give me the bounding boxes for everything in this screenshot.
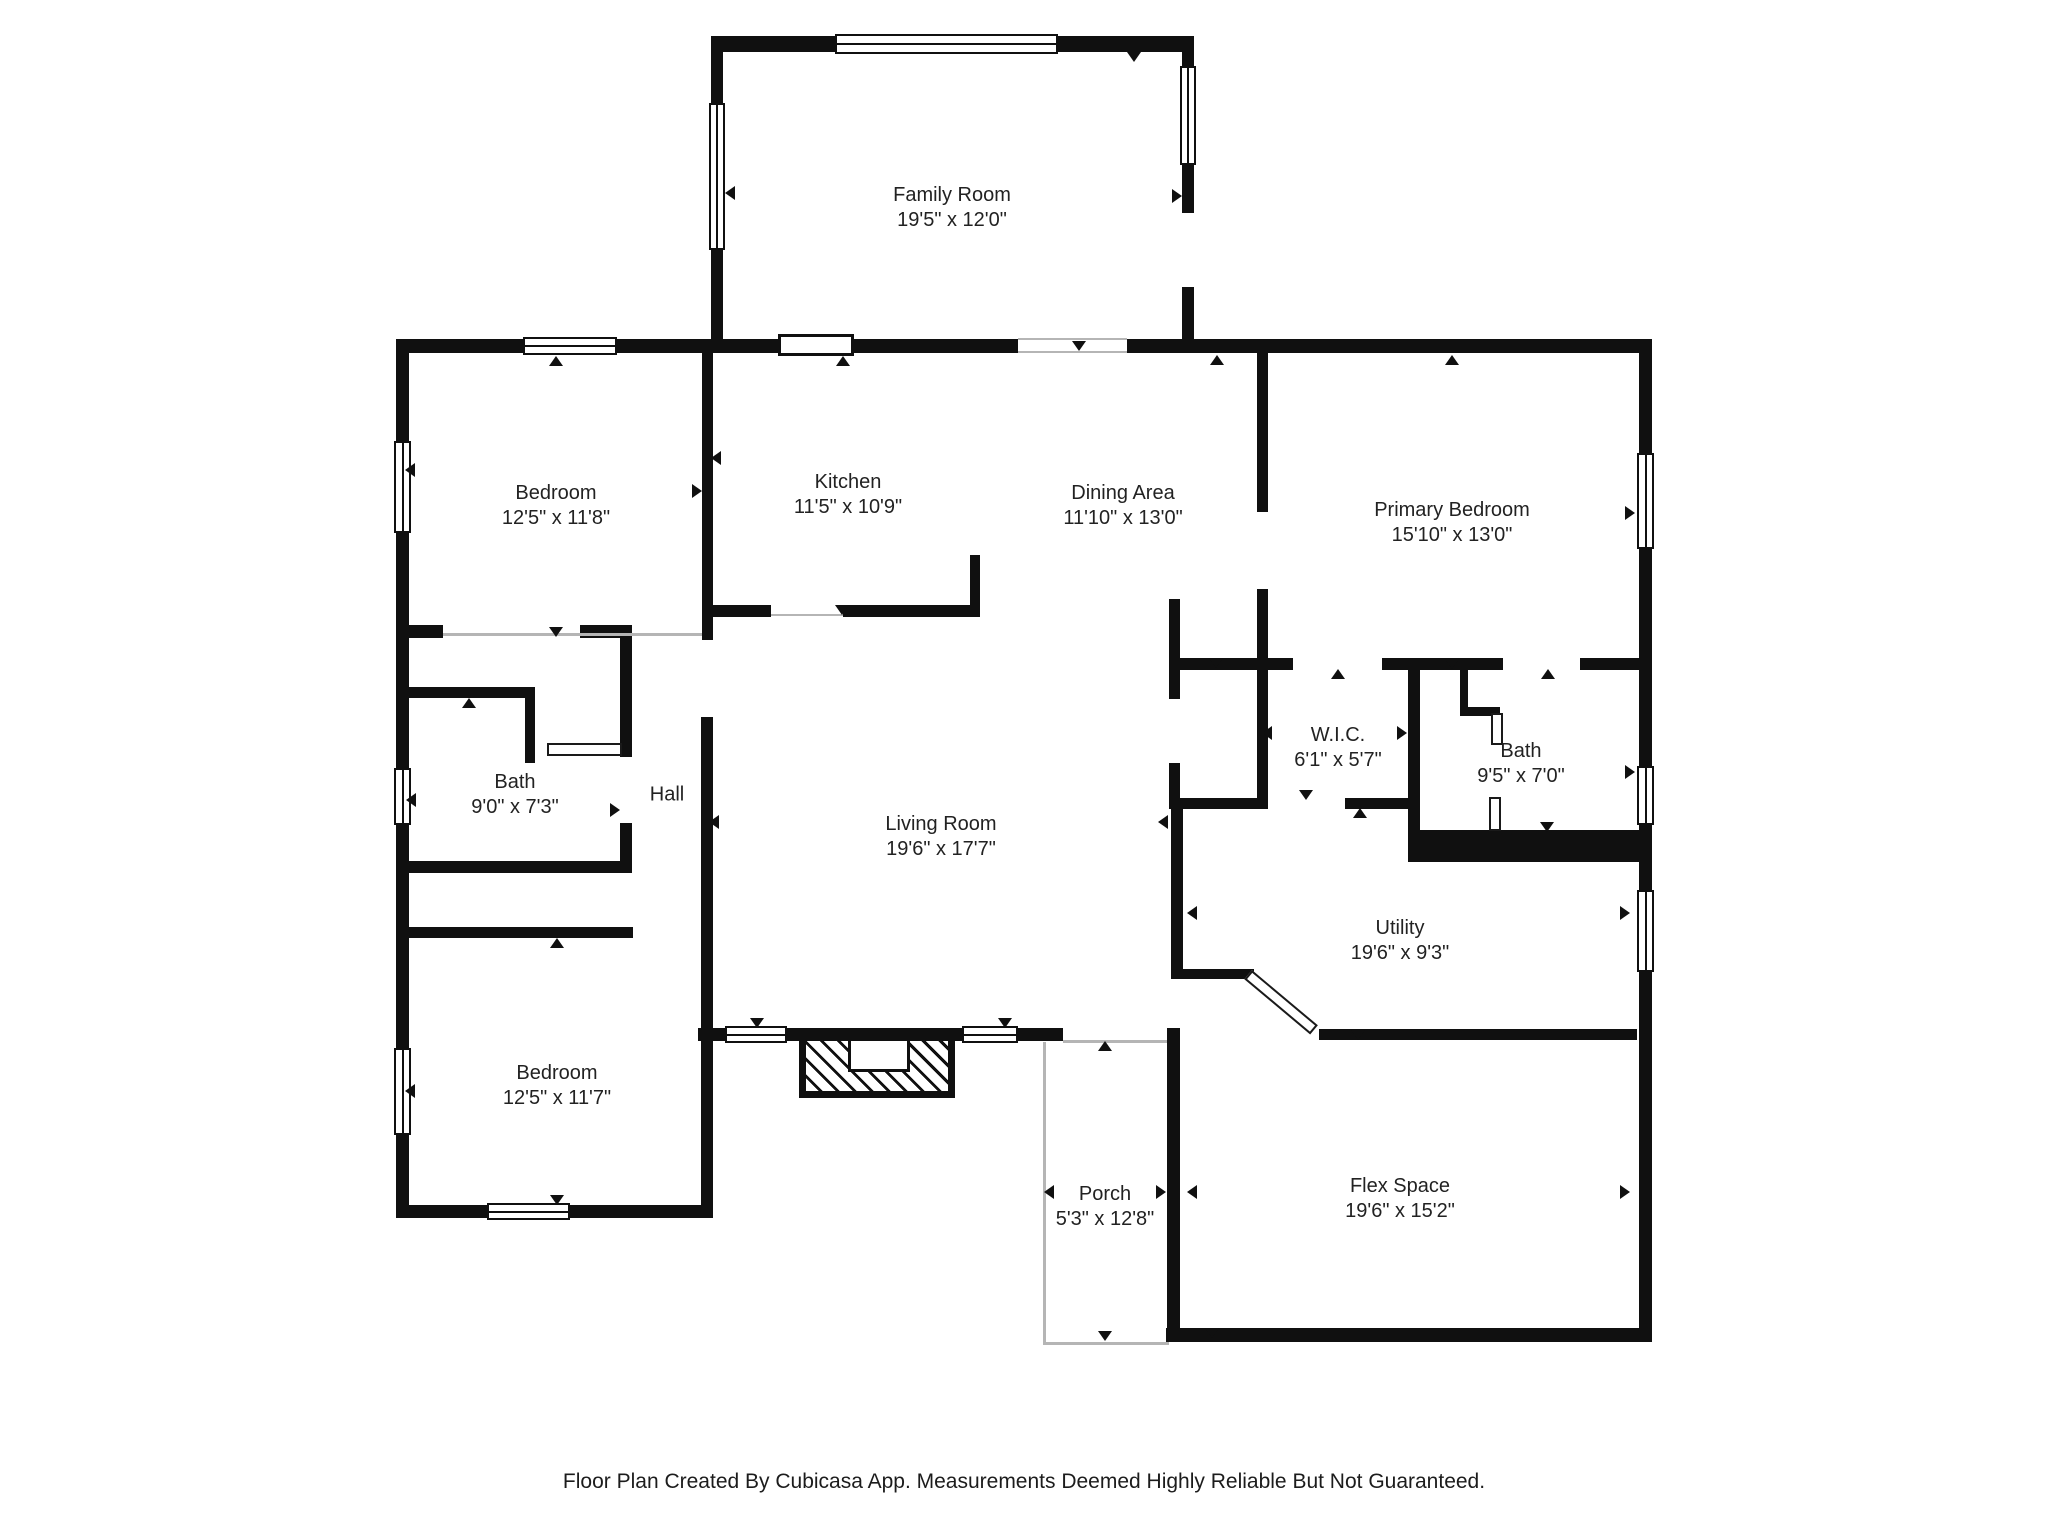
room-dimensions: 11'10" x 13'0" [1063, 506, 1182, 531]
door-arrow-icon [549, 356, 563, 366]
wall [1319, 1029, 1637, 1040]
door-arrow-icon [1299, 790, 1313, 800]
room-name: Bedroom [502, 481, 610, 506]
room-label-flex-space: Flex Space19'6" x 15'2" [1345, 1174, 1455, 1224]
door-arrow-icon [836, 356, 850, 366]
window-mullion [1645, 455, 1647, 547]
room-label-bath-right: Bath9'5" x 7'0" [1477, 739, 1564, 789]
door-opening [620, 757, 634, 823]
door-leaf [547, 743, 622, 756]
room-dimensions: 12'5" x 11'8" [502, 506, 610, 531]
window-mullion [402, 1050, 404, 1133]
door-arrow-icon [406, 793, 416, 807]
room-dimensions: 19'6" x 15'2" [1345, 1199, 1455, 1224]
door-arrow-icon [1625, 506, 1635, 520]
room-label-primary-bedroom: Primary Bedroom15'10" x 13'0" [1374, 498, 1530, 548]
boundary-line [1043, 1342, 1169, 1345]
door-arrow-icon [405, 1084, 415, 1098]
room-name: Porch [1056, 1182, 1155, 1207]
floorplan-canvas: Family Room19'5" x 12'0"Bedroom12'5" x 1… [0, 0, 2048, 1536]
wall [701, 717, 713, 1218]
window-mullion [402, 770, 404, 823]
door-arrow-icon [1625, 765, 1635, 779]
door-opening [1169, 699, 1182, 763]
room-label-wic: W.I.C.6'1" x 5'7" [1294, 723, 1381, 773]
room-dimensions: 6'1" x 5'7" [1294, 748, 1381, 773]
door-opening [1257, 512, 1270, 589]
room-name: Bath [1477, 739, 1564, 764]
window-mullion [489, 1211, 568, 1213]
window [394, 441, 411, 533]
door-arrow-icon [1205, 1328, 1219, 1338]
wall [408, 687, 535, 698]
window [523, 337, 617, 355]
room-label-dining-area: Dining Area11'10" x 13'0" [1063, 481, 1182, 531]
door-arrow-icon [750, 1018, 764, 1028]
window [1637, 890, 1654, 972]
window-mullion [402, 443, 404, 531]
window-mullion [964, 1034, 1016, 1036]
room-dimensions: 11'5" x 10'9" [794, 495, 902, 520]
wall [1171, 809, 1183, 979]
window-mullion [716, 105, 718, 248]
window [835, 34, 1058, 54]
door-arrow-icon [550, 1195, 564, 1205]
wall [970, 555, 980, 617]
wall [408, 861, 632, 873]
door-arrow-icon [405, 463, 415, 477]
window [962, 1026, 1018, 1043]
window [1637, 766, 1654, 825]
room-label-living-room: Living Room19'6" x 17'7" [885, 812, 996, 862]
wall [525, 687, 535, 763]
door-arrow-icon [692, 484, 702, 498]
door-arrow-icon [550, 938, 564, 948]
door-arrow-icon [1127, 52, 1141, 62]
wall [1408, 658, 1420, 862]
window [709, 103, 725, 250]
room-name: Flex Space [1345, 1174, 1455, 1199]
window [1637, 453, 1654, 549]
door-opening [1180, 213, 1196, 287]
room-label-kitchen: Kitchen11'5" x 10'9" [794, 470, 902, 520]
room-dimensions: 9'5" x 7'0" [1477, 764, 1564, 789]
door-arrow-icon [1172, 189, 1182, 203]
cased-opening [778, 334, 854, 356]
room-name: Utility [1351, 916, 1450, 941]
room-dimensions: 19'5" x 12'0" [893, 208, 1011, 233]
door-arrow-icon [1353, 808, 1367, 818]
door-arrow-icon [549, 627, 563, 637]
door-arrow-icon [1397, 726, 1407, 740]
window-mullion [525, 345, 615, 347]
window-mullion [1645, 768, 1647, 823]
door-arrow-icon [1351, 1030, 1365, 1040]
boundary-line [1018, 338, 1127, 340]
room-dimensions: 9'0" x 7'3" [471, 795, 558, 820]
room-dimensions: 5'3" x 12'8" [1056, 1207, 1155, 1232]
door-arrow-icon [1072, 341, 1086, 351]
room-name: Bath [471, 770, 558, 795]
window [1180, 66, 1196, 165]
wall [1171, 969, 1254, 979]
room-name: Hall [650, 783, 684, 808]
door-arrow-icon [1210, 355, 1224, 365]
door-arrow-icon [1445, 659, 1459, 669]
door-arrow-icon [998, 1018, 1012, 1028]
door-arrow-icon [1209, 658, 1223, 668]
window-mullion [727, 1034, 785, 1036]
door-arrow-icon [1540, 822, 1554, 832]
wall [1166, 1328, 1652, 1342]
room-name: Bedroom [503, 1061, 611, 1086]
window [725, 1026, 787, 1043]
door-arrow-icon [462, 698, 476, 708]
wall [702, 353, 713, 640]
wall [1410, 830, 1652, 862]
room-name: W.I.C. [1294, 723, 1381, 748]
room-label-porch: Porch5'3" x 12'8" [1056, 1182, 1155, 1232]
room-dimensions: 15'10" x 13'0" [1374, 523, 1530, 548]
door-arrow-icon [725, 186, 735, 200]
door-arrow-icon [1156, 1185, 1166, 1199]
room-dimensions: 12'5" x 11'7" [503, 1086, 611, 1111]
door-arrow-icon [1044, 1185, 1054, 1199]
door-arrow-icon [1620, 1185, 1630, 1199]
door-arrow-icon [1541, 669, 1555, 679]
room-label-utility: Utility19'6" x 9'3" [1351, 916, 1450, 966]
door-arrow-icon [1158, 815, 1168, 829]
room-dimensions: 19'6" x 9'3" [1351, 941, 1450, 966]
door-arrow-icon [711, 451, 721, 465]
door-arrow-icon [1098, 1331, 1112, 1341]
door-arrow-icon [1098, 1041, 1112, 1051]
door-arrow-icon [709, 815, 719, 829]
door-arrow-icon [1187, 906, 1197, 920]
room-name: Living Room [885, 812, 996, 837]
room-label-bedroom-bottom: Bedroom12'5" x 11'7" [503, 1061, 611, 1111]
diagonal-door-leaf [1244, 970, 1318, 1034]
window [487, 1203, 570, 1220]
room-name: Dining Area [1063, 481, 1182, 506]
boundary-line [1063, 1040, 1167, 1043]
room-name: Kitchen [794, 470, 902, 495]
window-mullion [837, 43, 1056, 45]
window-mullion [1645, 892, 1647, 970]
door-arrow-icon [1262, 726, 1272, 740]
door-arrow-icon [1187, 1185, 1197, 1199]
room-label-hall: Hall [650, 783, 684, 808]
door-arrow-icon [1620, 906, 1630, 920]
boundary-line [443, 633, 702, 636]
boundary-line [771, 614, 843, 616]
room-label-family-room: Family Room19'5" x 12'0" [893, 183, 1011, 233]
room-label-bedroom-top: Bedroom12'5" x 11'8" [502, 481, 610, 531]
door-arrow-icon [835, 605, 849, 615]
wall [1167, 1028, 1180, 1342]
wall [1460, 668, 1468, 716]
door-arrow-icon [610, 803, 620, 817]
door-arrow-icon [1331, 669, 1345, 679]
wall [408, 927, 633, 938]
room-label-bath-left: Bath9'0" x 7'3" [471, 770, 558, 820]
door-arrow-icon [1445, 355, 1459, 365]
room-dimensions: 19'6" x 17'7" [885, 837, 996, 862]
room-name: Family Room [893, 183, 1011, 208]
window-mullion [1187, 68, 1189, 163]
door-leaf [1489, 797, 1501, 831]
boundary-line [1018, 351, 1127, 353]
footer-disclaimer: Floor Plan Created By Cubicasa App. Meas… [0, 1470, 2048, 1494]
room-name: Primary Bedroom [1374, 498, 1530, 523]
